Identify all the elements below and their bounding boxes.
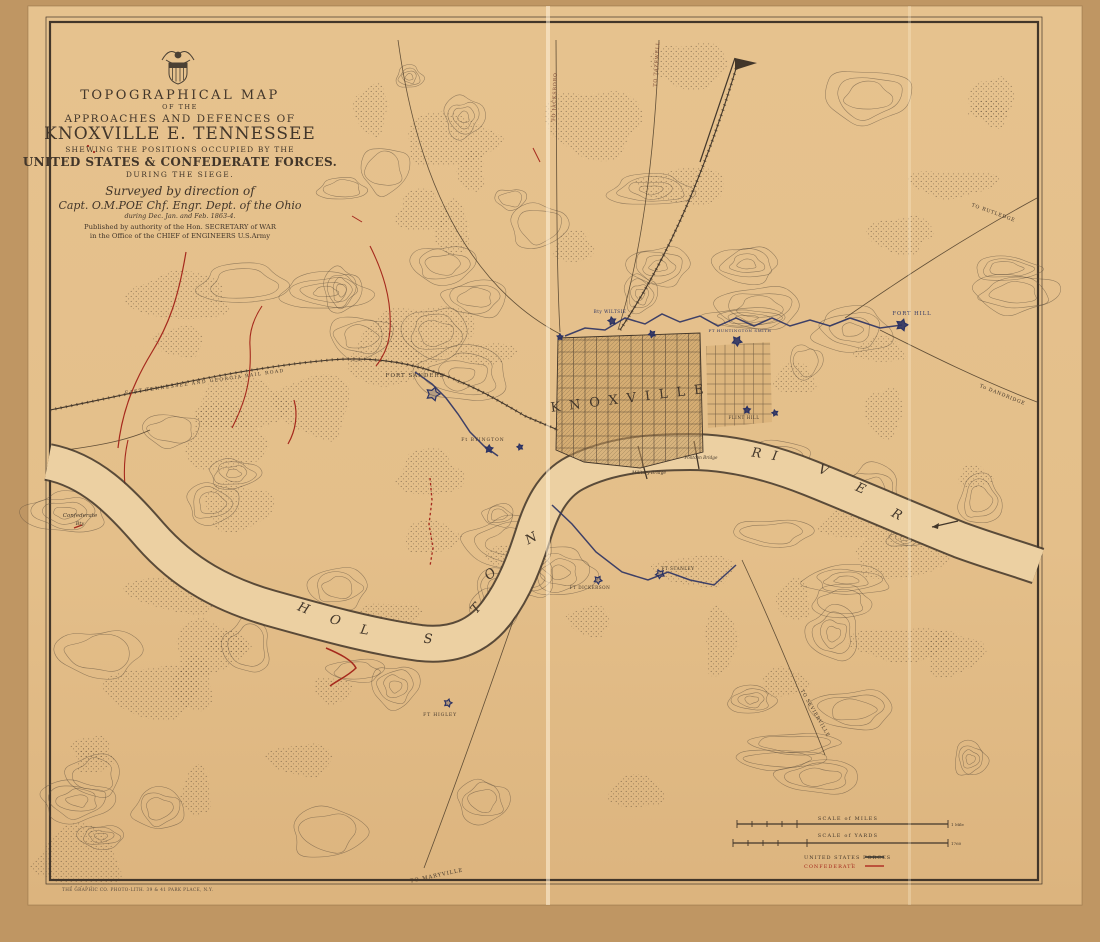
printer-imprint: THE GRAPHIC CO. PHOTO-LITH. 39 & 41 PARK… <box>62 887 213 892</box>
map-label: Confederate <box>63 513 98 519</box>
title-line-11: Published by authority of the Hon. SECRE… <box>84 223 277 231</box>
map-label: FT DICKERSON <box>570 585 611 590</box>
map-label: R <box>750 445 763 461</box>
title-line-7: DURING THE SIEGE. <box>126 170 234 179</box>
map-label: FORT HILL <box>892 311 931 317</box>
map-label: Pontoon Bridge <box>684 455 718 460</box>
title-line-6: UNITED STATES & CONFEDERATE FORCES. <box>23 155 337 169</box>
map-label: FLINT HILL <box>729 415 760 420</box>
title-line-8: Surveyed by direction of <box>105 184 257 198</box>
map-label: Military Bridge <box>631 471 666 476</box>
center-fold-crease <box>546 6 550 905</box>
title-line-2: OF THE <box>162 103 198 111</box>
knoxville-siege-map: HOLSTONRIVERKNOXVILLEFORT SANDERSFt BYIN… <box>0 0 1100 942</box>
map-label: FT STANLEY <box>662 566 695 571</box>
map-label: Bty WILTSIE <box>594 309 627 314</box>
map-label: FT HIGLEY <box>423 712 457 718</box>
legend-us-label: UNITED STATES FORCES <box>804 855 891 861</box>
title-line-12: in the Office of the CHIEF of ENGINEERS … <box>90 232 270 240</box>
map-label: Ft BYINGTON <box>461 437 505 443</box>
title-line-10: during Dec. Jan. and Feb. 1863-4. <box>124 212 235 220</box>
scale-miles-caption: SCALE of MILES <box>818 816 878 822</box>
title-line-4: KNOXVILLE E. TENNESSEE <box>44 124 316 144</box>
map-label: S <box>423 632 433 647</box>
scale-yards-caption: SCALE of YARDS <box>818 833 878 839</box>
scale-yards-end: 1760 <box>951 841 962 846</box>
map-label: FT HUNTINGTON SMITH <box>709 328 772 333</box>
title-line-9: Capt. O.M.POE Chf. Engr. Dept. of the Oh… <box>58 199 301 212</box>
map-label: FORT SANDERS <box>386 373 445 379</box>
title-line-1: TOPOGRAPHICAL MAP <box>80 88 280 103</box>
title-line-5: SHEWING THE POSITIONS OCCUPIED BY THE <box>65 145 295 154</box>
legend-conf-label: CONFEDERATE <box>804 864 856 870</box>
legend-ditto-mark: ″ <box>851 863 853 869</box>
scale-miles-end: 1 Mile <box>951 822 964 827</box>
map-scan: HOLSTONRIVERKNOXVILLEFORT SANDERSFt BYIN… <box>0 0 1100 942</box>
right-fold-crease <box>908 6 911 905</box>
map-label: Bty <box>75 521 85 527</box>
